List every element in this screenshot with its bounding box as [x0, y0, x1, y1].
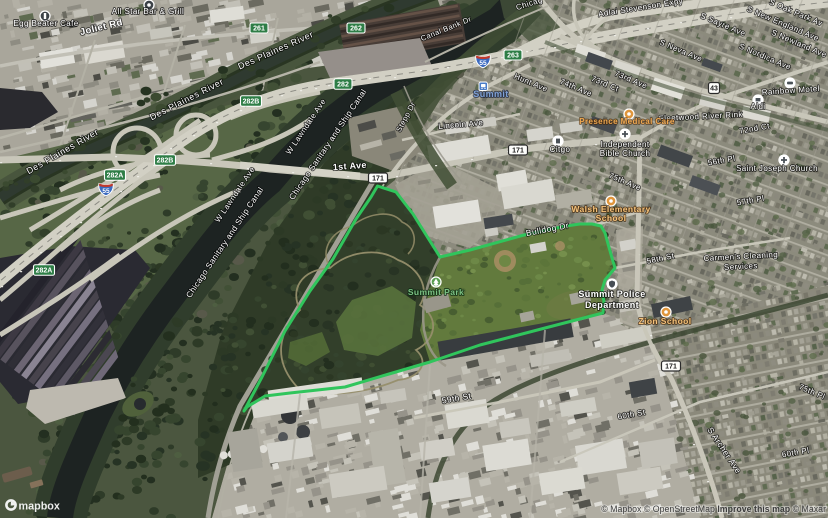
svg-text:55: 55 [479, 60, 487, 67]
svg-text:43: 43 [710, 86, 718, 93]
svg-text:Saint Joseph Church: Saint Joseph Church [736, 164, 818, 173]
svg-text:262: 262 [350, 26, 362, 33]
svg-text:282B: 282B [157, 158, 174, 165]
svg-text:282A: 282A [107, 173, 124, 180]
svg-text:263: 263 [507, 53, 519, 60]
svg-text:Egg Beater Cafe: Egg Beater Cafe [13, 19, 78, 28]
svg-text:School: School [596, 213, 627, 223]
svg-text:171: 171 [665, 364, 677, 371]
svg-text:All Star Bar & Grill: All Star Bar & Grill [112, 7, 184, 16]
svg-text:Presence Medical Care: Presence Medical Care [579, 117, 675, 126]
svg-text:mapbox: mapbox [19, 500, 60, 512]
svg-text:282: 282 [337, 82, 349, 89]
svg-text:Zion School: Zion School [638, 316, 691, 326]
svg-text:Summit Police: Summit Police [578, 289, 645, 299]
svg-text:282B: 282B [243, 99, 260, 106]
svg-text:Summit: Summit [473, 89, 508, 99]
svg-text:Citgo: Citgo [550, 145, 571, 154]
svg-text:282A: 282A [36, 268, 53, 275]
svg-text:Independent: Independent [601, 140, 650, 149]
svg-text:Aldi: Aldi [751, 102, 766, 111]
svg-text:171: 171 [512, 148, 524, 155]
svg-text:55: 55 [102, 188, 110, 195]
svg-text:Bible Church: Bible Church [600, 149, 651, 158]
svg-text:261: 261 [253, 26, 265, 33]
svg-text:Department: Department [585, 300, 639, 310]
svg-text:© Mapbox © OpenStreetMap Impro: © Mapbox © OpenStreetMap Improve this ma… [601, 504, 826, 514]
svg-text:171: 171 [372, 176, 384, 183]
svg-text:Summit Park: Summit Park [408, 287, 464, 297]
svg-text:Services: Services [724, 261, 758, 272]
